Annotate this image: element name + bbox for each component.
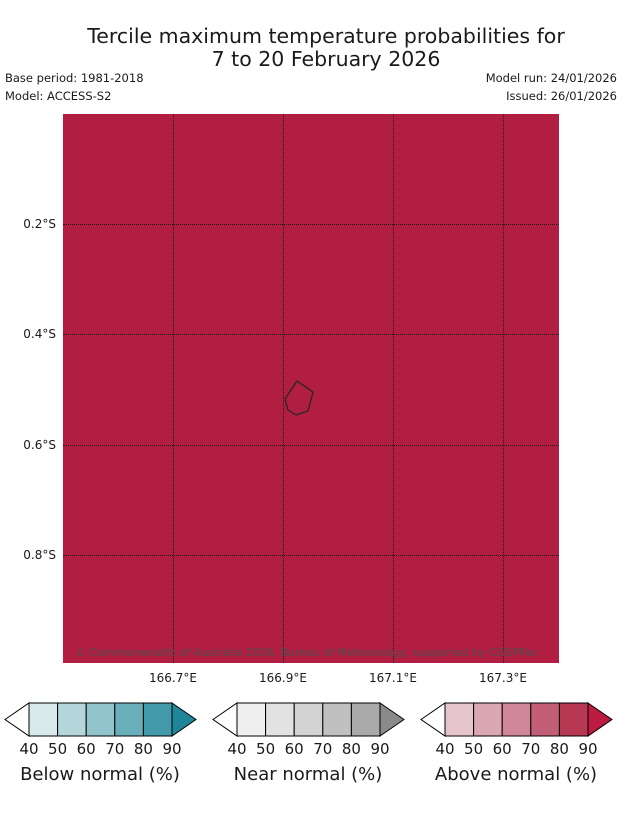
model-text: Model: ACCESS-S2 — [5, 87, 144, 105]
gridline-vertical — [283, 114, 284, 663]
colorbar-above-normal: 405060708090Above normal (%) — [420, 702, 621, 794]
colorbar-title: Above normal (%) — [435, 764, 597, 785]
lat-tick-label: 0.8°S — [0, 547, 56, 563]
colorbar-segment — [86, 703, 115, 736]
forecast-figure: Tercile maximum temperature probabilitie… — [0, 0, 621, 839]
colorbar-tick-label: 80 — [550, 741, 569, 758]
colorbar-segment — [445, 703, 474, 736]
colorbar-segment — [294, 703, 323, 736]
gridline-vertical — [503, 114, 504, 663]
colorbar-segment — [143, 703, 172, 736]
copyright-text: © Commonwealth of Australia 2026, Bureau… — [75, 646, 538, 659]
colorbar-segment — [323, 703, 352, 736]
lat-tick-label: 0.4°S — [0, 326, 56, 342]
colorbar-tick-label: 90 — [370, 741, 389, 758]
colorbar-tick-label: 70 — [105, 741, 124, 758]
left-arrow-icon — [421, 703, 445, 736]
lon-tick-label: 167.1°E — [369, 671, 417, 685]
gridline-horizontal — [63, 334, 559, 335]
colorbar-near-normal: 405060708090Near normal (%) — [212, 702, 413, 794]
right-arrow-icon — [172, 703, 196, 736]
colorbar-segment — [351, 703, 380, 736]
model-run-text: Model run: 24/01/2026 — [486, 69, 617, 87]
figure-title: Tercile maximum temperature probabilitie… — [31, 25, 621, 71]
title-line-2: 7 to 20 February 2026 — [31, 48, 621, 71]
colorbar-title: Near normal (%) — [234, 764, 383, 785]
colorbar-tick-label: 50 — [464, 741, 483, 758]
metadata-left: Base period: 1981-2018 Model: ACCESS-S2 — [5, 69, 144, 105]
colorbar-tick-label: 60 — [77, 741, 96, 758]
colorbar-tick-label: 60 — [493, 741, 512, 758]
colorbar-title: Below normal (%) — [20, 764, 180, 785]
colorbar-segment — [115, 703, 144, 736]
map-panel: © Commonwealth of Australia 2026, Bureau… — [63, 114, 559, 663]
colorbar-tick-label: 90 — [578, 741, 597, 758]
colorbar-tick-label: 80 — [342, 741, 361, 758]
colorbar-segment — [502, 703, 531, 736]
left-arrow-icon — [5, 703, 29, 736]
left-arrow-icon — [213, 703, 237, 736]
colorbar-arrow-bar — [212, 702, 413, 738]
colorbar-tick-label: 50 — [48, 741, 67, 758]
colorbar-tick-label: 70 — [313, 741, 332, 758]
colorbar-tick-label: 90 — [162, 741, 181, 758]
colorbar-tick-label: 40 — [227, 741, 246, 758]
colorbar-segment — [266, 703, 295, 736]
gridline-vertical — [393, 114, 394, 663]
right-arrow-icon — [588, 703, 612, 736]
right-arrow-icon — [380, 703, 404, 736]
lat-tick-label: 0.6°S — [0, 437, 56, 453]
lon-tick-label: 167.3°E — [479, 671, 527, 685]
colorbar-segment — [474, 703, 503, 736]
colorbar-tick-label: 70 — [521, 741, 540, 758]
metadata-right: Model run: 24/01/2026 Issued: 26/01/2026 — [486, 69, 617, 105]
lon-tick-label: 166.9°E — [259, 671, 307, 685]
title-line-1: Tercile maximum temperature probabilitie… — [31, 25, 621, 48]
base-period-text: Base period: 1981-2018 — [5, 69, 144, 87]
colorbar-segment — [237, 703, 266, 736]
lat-tick-label: 0.2°S — [0, 216, 56, 232]
gridline-horizontal — [63, 555, 559, 556]
colorbar-segment — [29, 703, 58, 736]
nauru-island-outline — [63, 114, 559, 663]
colorbar-tick-label: 40 — [19, 741, 38, 758]
colorbar-below-normal: 405060708090Below normal (%) — [4, 702, 205, 794]
colorbar-tick-label: 40 — [435, 741, 454, 758]
colorbar-arrow-bar — [420, 702, 621, 738]
colorbar-tick-label: 60 — [285, 741, 304, 758]
colorbar-tick-label: 80 — [134, 741, 153, 758]
colorbar-segment — [559, 703, 588, 736]
colorbar-arrow-bar — [4, 702, 205, 738]
colorbar-segment — [58, 703, 87, 736]
issued-text: Issued: 26/01/2026 — [486, 87, 617, 105]
colorbar-tick-label: 50 — [256, 741, 275, 758]
colorbar-segment — [531, 703, 560, 736]
gridline-horizontal — [63, 445, 559, 446]
gridline-horizontal — [63, 224, 559, 225]
gridline-vertical — [173, 114, 174, 663]
lon-tick-label: 166.7°E — [149, 671, 197, 685]
